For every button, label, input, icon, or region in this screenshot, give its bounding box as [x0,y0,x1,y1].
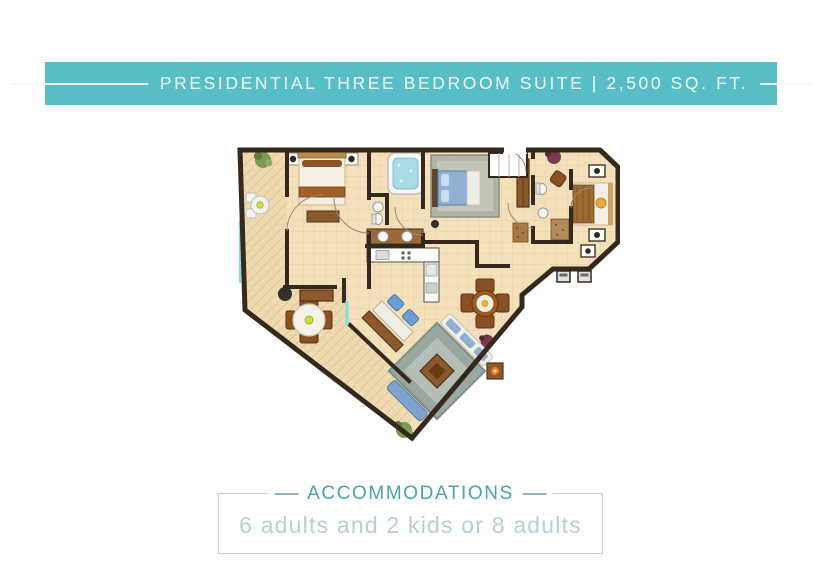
suite-title-banner: PRESIDENTIAL THREE BEDROOM SUITE | 2,500… [45,62,777,105]
closet-icon [489,153,527,177]
tv-console-icon [487,363,503,379]
console-table-icon [300,290,333,301]
accommodations-box: ACCOMMODATIONS 6 adults and 2 kids or 8 … [218,493,603,554]
legend-left-dash [274,493,298,495]
sink-icon [373,202,383,212]
accommodations-capacity: 6 adults and 2 kids or 8 adults [219,512,602,539]
bench-icon [307,211,339,222]
banner-left-rule [10,83,148,85]
floor-plan-svg [237,143,620,445]
lamp-icon [290,156,296,162]
bed-icon [298,152,346,205]
bed-icon [573,183,613,225]
planter-pot-icon [278,287,292,301]
entry-opening [504,146,526,154]
plant-leaf [254,152,262,160]
lamp-icon [594,232,600,238]
floor-lamp-icon [431,220,439,228]
tile-floor-icon [513,223,528,242]
floor-plan-image [237,143,620,445]
suite-title: PRESIDENTIAL THREE BEDROOM SUITE | 2,500… [148,73,760,94]
shower-icon [551,219,569,240]
double-vanity-icon [367,229,423,244]
sink-icon [538,208,548,218]
fridge-icon [426,264,437,276]
dishwasher-icon [426,283,437,293]
accommodations-legend: ACCOMMODATIONS [268,483,553,505]
lamp-icon [348,156,354,162]
kitchen-sink-icon [376,251,389,260]
banner-right-rule [760,83,812,85]
plant-leaf [266,160,273,167]
lamp-icon [594,168,600,174]
legend-right-dash [523,493,547,495]
pillow-icon [596,198,606,208]
accommodations-title: ACCOMMODATIONS [307,483,514,505]
bed-icon [432,169,480,207]
wet-bar [557,271,591,282]
